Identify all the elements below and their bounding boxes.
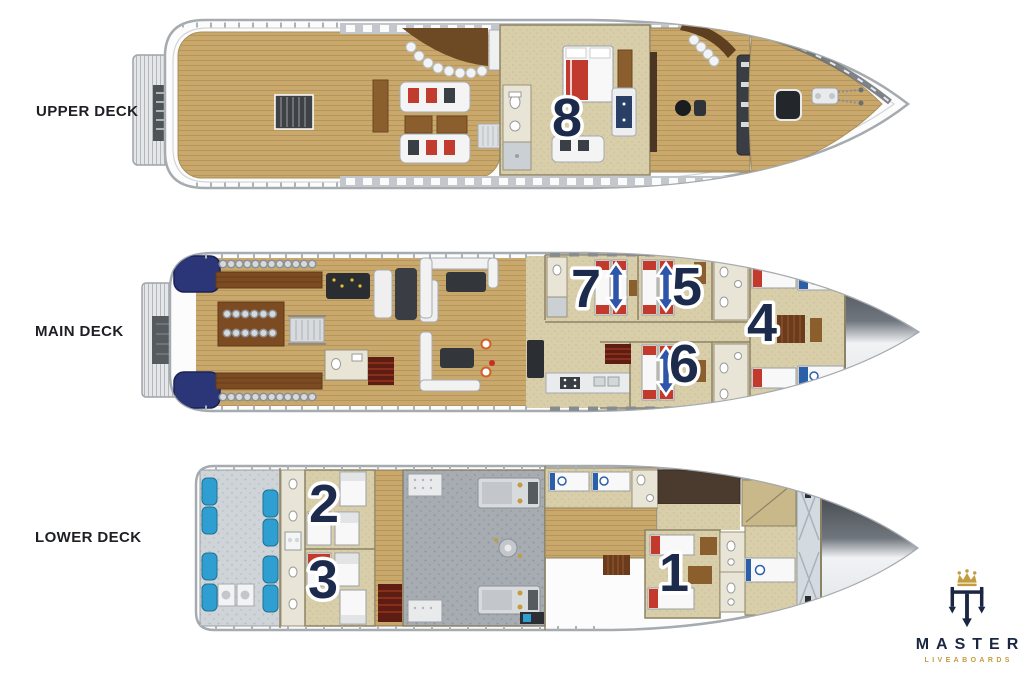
deck-plan-page: 8: [0, 0, 1024, 677]
stairs-up-forward: [603, 555, 630, 575]
lower-corridor-forward: [545, 508, 657, 558]
engine-block-port: [478, 478, 540, 508]
upper-deck-plan: 8: [133, 20, 908, 188]
cabin-7-number: 7: [571, 259, 601, 319]
crew-cabins: [545, 468, 658, 508]
forward-bathrooms: [720, 532, 745, 612]
main-deck-label: MAIN DECK: [35, 323, 124, 340]
logo-mark: [938, 569, 996, 631]
engine-block-starboard: [478, 586, 540, 614]
cabin-1-number: 1: [659, 543, 689, 603]
lower-deck-plan: 2 3 1: [196, 466, 917, 630]
deck-stairs-up: [288, 316, 326, 344]
crown-icon: [957, 569, 976, 586]
stairs-down-lower: [378, 584, 402, 622]
cabin-5-number: 5: [672, 257, 702, 317]
logo-tagline-text: LIVEABOARDS: [921, 657, 1013, 664]
bow-hatch: [775, 90, 801, 120]
main-bow-hull: [845, 262, 915, 402]
bow-deck: [740, 30, 890, 174]
wheelhouse: [650, 20, 755, 172]
guest-bathrooms-column: [281, 470, 305, 626]
sun-deck-stairwell: [275, 95, 313, 129]
master-liveaboards-logo: MASTER LIVEABOARDS: [893, 569, 1024, 664]
cabin-3-number: 3: [308, 550, 338, 610]
day-head-bathroom: [325, 350, 368, 380]
lower-deck-label: LOWER DECK: [35, 529, 142, 546]
main-deck-plan: 7 5 6 4: [142, 253, 918, 411]
cabin-8-number: 8: [552, 88, 582, 148]
stairs-down-aft: [368, 357, 394, 385]
collision-bulkhead: [797, 483, 821, 609]
cabin-2-number: 2: [309, 474, 339, 534]
upper-deck-label: UPPER DECK: [36, 103, 138, 120]
engine-room: [403, 470, 545, 626]
deck-plans-canvas: 8: [0, 0, 1024, 677]
cabin-6-number: 6: [669, 334, 699, 394]
logo-brand-text: MASTER: [909, 636, 1024, 654]
trident-icon: [949, 587, 986, 627]
cabin-4-number: 4: [747, 293, 777, 353]
bow-cabin: [742, 480, 797, 615]
aft-storage-compartment: [200, 470, 280, 626]
